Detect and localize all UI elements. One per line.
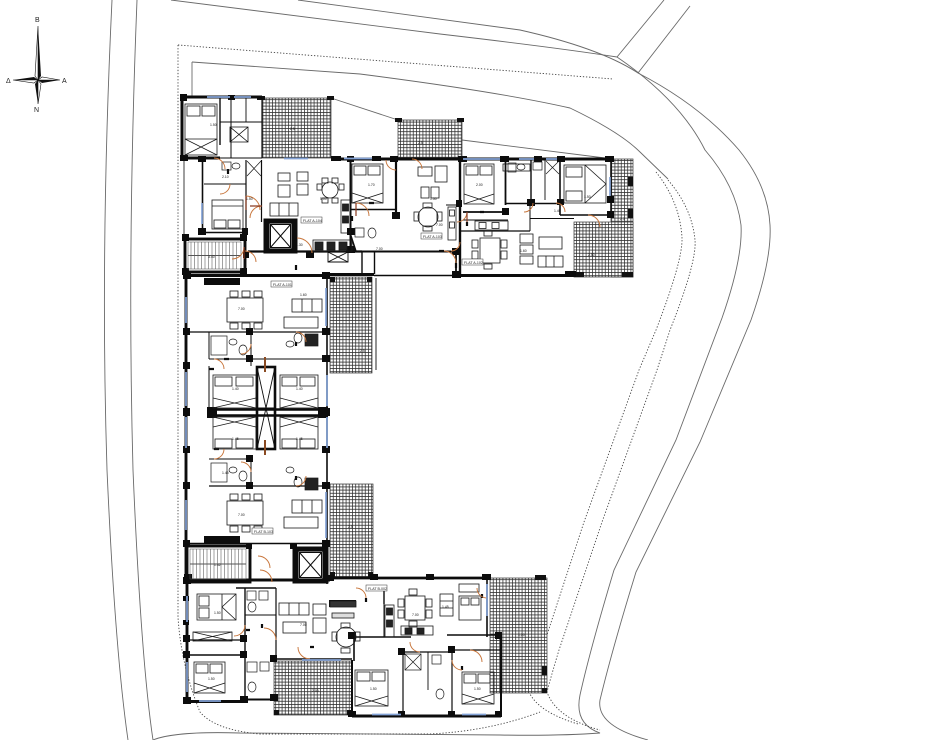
svg-text:FLAT B-002: FLAT B-002 bbox=[368, 587, 387, 591]
svg-text:1.60: 1.60 bbox=[520, 249, 527, 253]
svg-text:FLAT A-102: FLAT A-102 bbox=[464, 261, 483, 265]
svg-text:1.70: 1.70 bbox=[368, 183, 375, 187]
svg-text:1.50: 1.50 bbox=[214, 611, 221, 615]
svg-text:1.50: 1.50 bbox=[584, 195, 591, 199]
svg-text:1.50: 1.50 bbox=[210, 123, 217, 127]
svg-text:1.60: 1.60 bbox=[300, 293, 307, 297]
svg-text:A: A bbox=[62, 78, 67, 85]
svg-text:FLAT B-103: FLAT B-103 bbox=[254, 530, 273, 534]
svg-text:1.50: 1.50 bbox=[208, 677, 215, 681]
svg-text:7.00: 7.00 bbox=[412, 613, 419, 617]
svg-text:7.00: 7.00 bbox=[238, 513, 245, 517]
svg-text:2.10: 2.10 bbox=[222, 175, 229, 179]
svg-text:FLAT A-104: FLAT A-104 bbox=[303, 219, 322, 223]
svg-text:1.50: 1.50 bbox=[474, 687, 481, 691]
svg-text:2.00: 2.00 bbox=[312, 689, 319, 693]
svg-text:1.40: 1.40 bbox=[232, 387, 239, 391]
svg-text:N: N bbox=[34, 107, 39, 114]
svg-text:2.50: 2.50 bbox=[588, 253, 595, 257]
svg-text:1.45: 1.45 bbox=[232, 437, 239, 441]
svg-text:2.5: 2.5 bbox=[348, 525, 353, 529]
svg-text:B: B bbox=[35, 17, 40, 24]
svg-text:7.00: 7.00 bbox=[436, 223, 443, 227]
svg-text:2.5: 2.5 bbox=[360, 349, 365, 353]
svg-text:Δ: Δ bbox=[6, 78, 11, 85]
svg-text:1.30: 1.30 bbox=[296, 243, 303, 247]
svg-text:2.00: 2.00 bbox=[476, 183, 483, 187]
svg-text:1.50: 1.50 bbox=[430, 197, 437, 201]
svg-text:1.40: 1.40 bbox=[296, 387, 303, 391]
svg-text:FLAT A-101: FLAT A-101 bbox=[273, 283, 292, 287]
svg-text:2.5: 2.5 bbox=[620, 217, 625, 221]
svg-text:3.40: 3.40 bbox=[208, 255, 215, 259]
svg-text:1.50: 1.50 bbox=[246, 197, 253, 201]
svg-text:1.42: 1.42 bbox=[214, 563, 221, 567]
svg-text:2.5: 2.5 bbox=[290, 127, 295, 131]
svg-text:FLAT A-103: FLAT A-103 bbox=[423, 235, 442, 239]
svg-text:1.45: 1.45 bbox=[222, 471, 229, 475]
svg-text:7.00: 7.00 bbox=[238, 307, 245, 311]
svg-text:7.00: 7.00 bbox=[376, 247, 383, 251]
svg-text:1.50: 1.50 bbox=[370, 687, 377, 691]
svg-text:2.5: 2.5 bbox=[418, 141, 423, 145]
svg-text:1.45: 1.45 bbox=[442, 605, 449, 609]
svg-text:1.40: 1.40 bbox=[554, 209, 561, 213]
svg-text:1.45: 1.45 bbox=[296, 437, 303, 441]
svg-text:5.00: 5.00 bbox=[320, 197, 327, 201]
svg-text:7.00: 7.00 bbox=[300, 623, 307, 627]
svg-text:1.50: 1.50 bbox=[518, 633, 525, 637]
